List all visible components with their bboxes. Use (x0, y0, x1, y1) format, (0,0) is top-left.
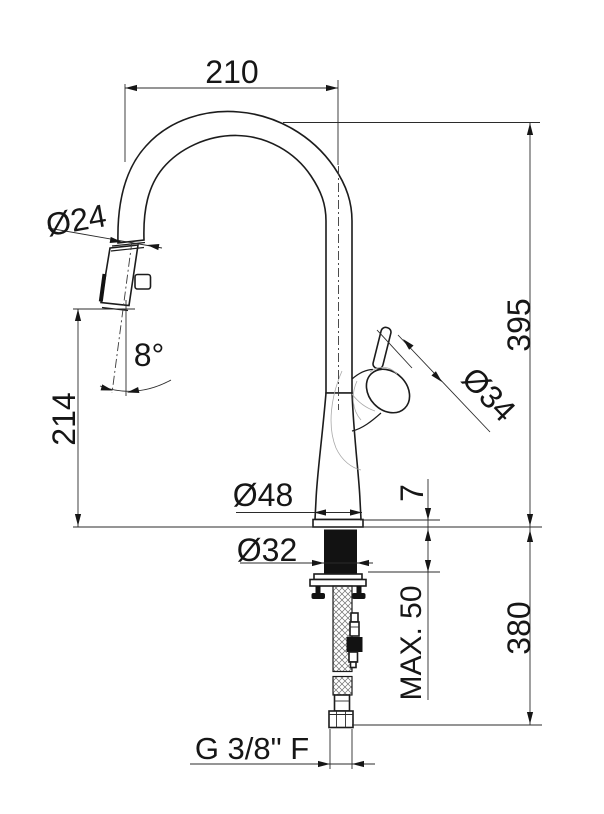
dimension-head-angle: 8° (100, 300, 171, 396)
dim-label-handle-diameter: Ø34 (455, 360, 523, 429)
dim-label-spout-reach: 210 (205, 54, 258, 90)
mounting-bolt-left (312, 586, 326, 599)
dimension-plate-and-counter: 7 MAX. 50 (360, 479, 440, 701)
dim-label-total-height: 395 (501, 298, 537, 351)
hose-ferrule (335, 695, 350, 711)
dim-label-head-angle: 8° (134, 337, 165, 373)
dim-label-outlet-height: 214 (46, 392, 82, 445)
faucet-drawing-canvas: 210 Ø24 8° 214 395 Ø34 (0, 0, 604, 814)
spray-button (135, 275, 151, 290)
mounting-bolt-right (352, 586, 366, 599)
braided-hose-lower (333, 677, 352, 696)
dim-label-head-diameter: Ø24 (43, 197, 109, 243)
dimension-supply-connection: G 3/8" F (190, 729, 375, 769)
supply-hose (329, 586, 363, 728)
threaded-shank (324, 530, 357, 575)
connection-nut (329, 711, 353, 728)
dim-label-base-diameter: Ø48 (233, 477, 293, 513)
dimension-outlet-height: 214 (46, 309, 135, 527)
dim-label-max-counter-thickness: MAX. 50 (395, 585, 428, 700)
handle-lever (372, 326, 392, 369)
dim-label-supply-connection: G 3/8" F (195, 731, 309, 766)
mounting-assembly (73, 520, 542, 600)
handle-dome (358, 361, 419, 422)
dimension-hose-length: 380 (352, 527, 542, 725)
spray-head-shell (101, 245, 138, 306)
faucet-body (315, 393, 361, 520)
dim-label-base-plate-height: 7 (394, 484, 430, 502)
base-plate (313, 520, 363, 528)
mounting-bracket-lower (310, 580, 366, 587)
technical-drawing-page: 210 Ø24 8° 214 395 Ø34 (0, 0, 604, 814)
dim-label-shank-diameter: Ø32 (237, 532, 297, 568)
faucet-outline (101, 111, 419, 519)
dim-label-hose-length: 380 (501, 601, 537, 654)
mounting-bracket-upper (314, 574, 362, 580)
